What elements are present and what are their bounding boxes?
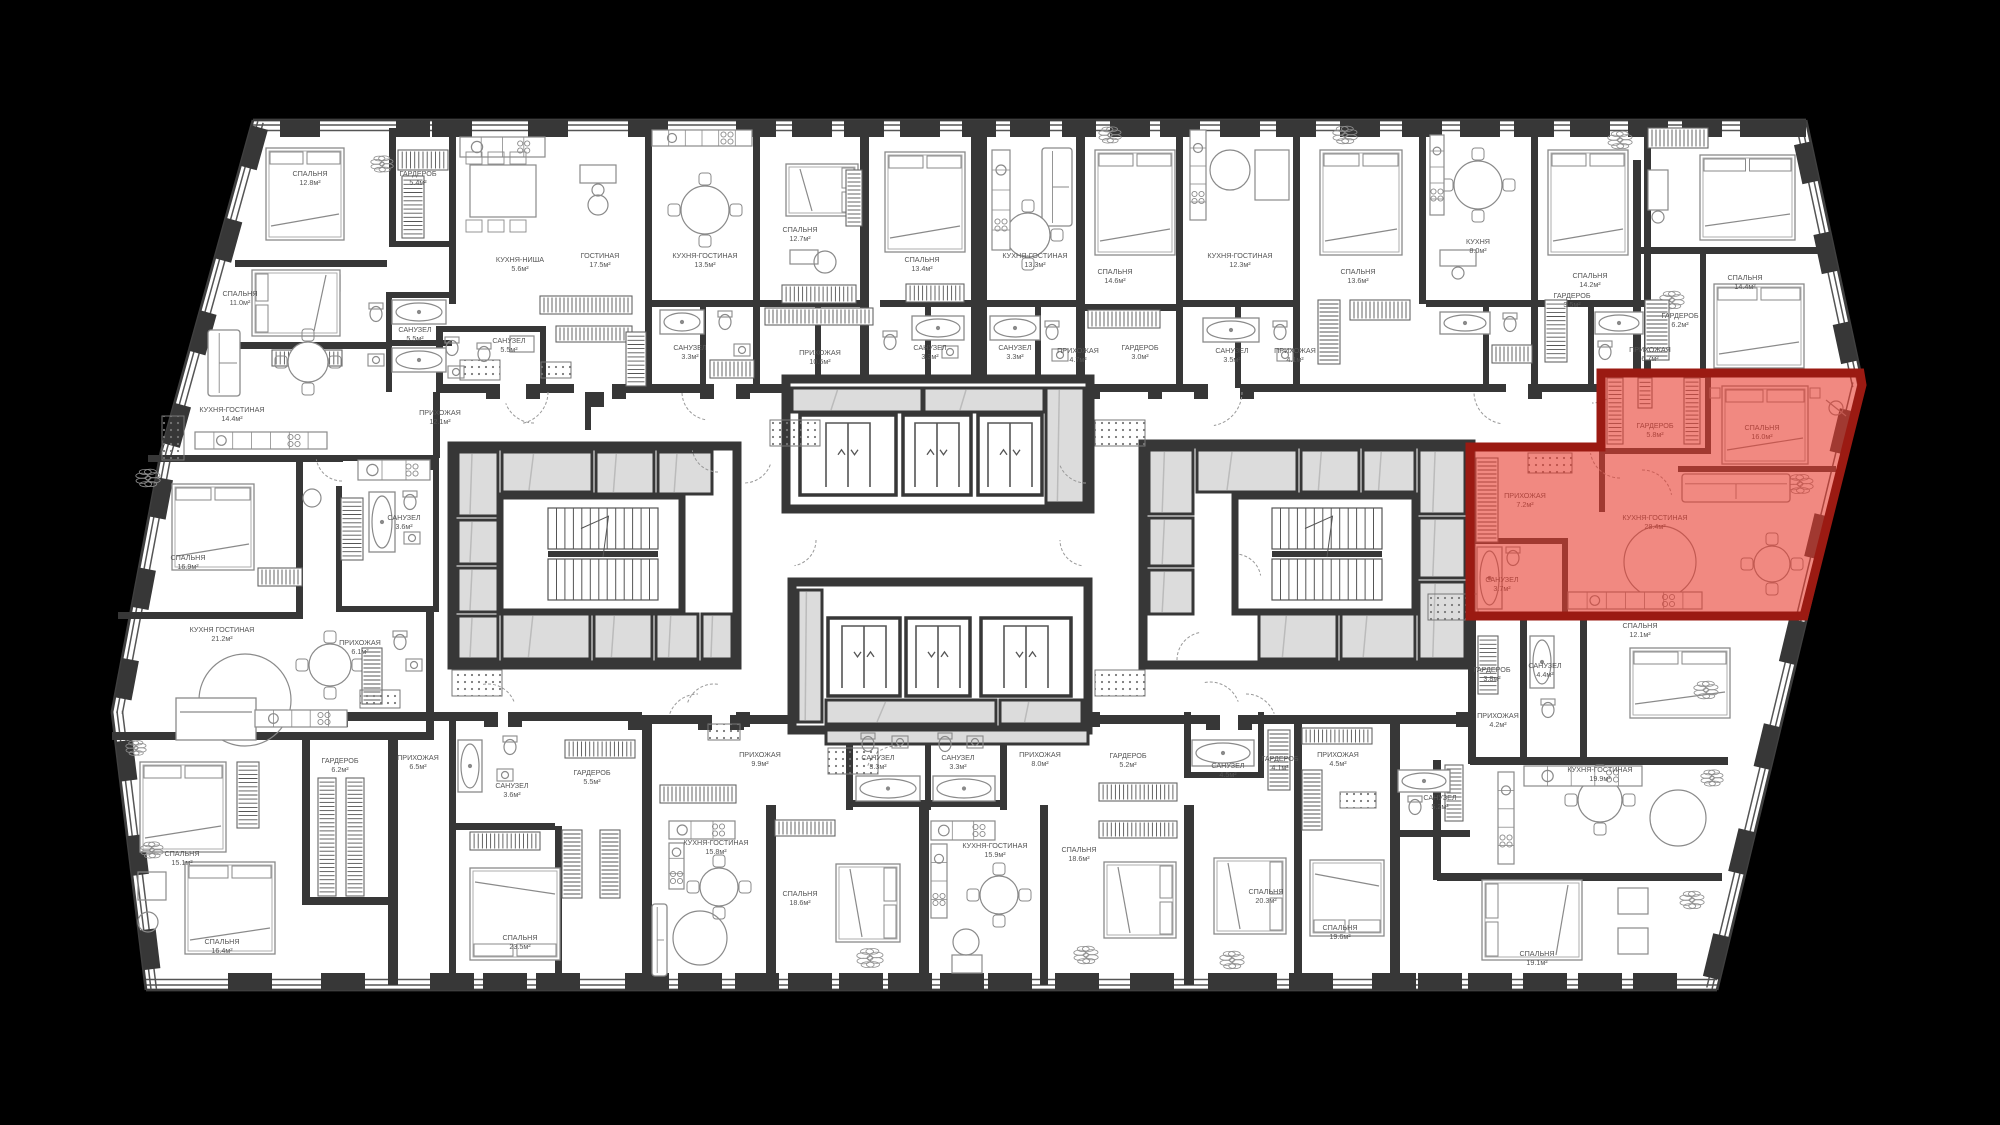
svg-text:3.5м²: 3.5м² xyxy=(1563,300,1581,309)
svg-text:6.2м²: 6.2м² xyxy=(331,765,349,774)
svg-text:6.7м²: 6.7м² xyxy=(1641,354,1659,363)
svg-text:10.5м²: 10.5м² xyxy=(809,357,831,366)
svg-text:3.5м²: 3.5м² xyxy=(1223,355,1241,364)
svg-text:4.1м²: 4.1м² xyxy=(1286,355,1304,364)
svg-text:5.5м²: 5.5м² xyxy=(500,345,518,354)
svg-text:ГАРДЕРОБ: ГАРДЕРОБ xyxy=(573,768,610,777)
svg-text:СПАЛЬНЯ: СПАЛЬНЯ xyxy=(1322,923,1357,932)
svg-text:СПАЛЬНЯ: СПАЛЬНЯ xyxy=(782,889,817,898)
svg-text:СПАЛЬНЯ: СПАЛЬНЯ xyxy=(1248,887,1283,896)
svg-text:13.5м²: 13.5м² xyxy=(694,260,716,269)
svg-text:13.4м²: 13.4м² xyxy=(911,264,933,273)
svg-text:ГАРДЕРОБ: ГАРДЕРОБ xyxy=(1109,751,1146,760)
svg-text:СПАЛЬНЯ: СПАЛЬНЯ xyxy=(164,849,199,858)
svg-text:КУХНЯ-ГОСТИНАЯ: КУХНЯ-ГОСТИНАЯ xyxy=(199,405,264,414)
svg-text:12.8м²: 12.8м² xyxy=(299,178,321,187)
svg-text:4.5м²: 4.5м² xyxy=(1329,759,1347,768)
svg-text:6.2м²: 6.2м² xyxy=(1671,320,1689,329)
svg-text:САНУЗЕЛ: САНУЗЕЛ xyxy=(941,753,975,762)
svg-text:СПАЛЬНЯ: СПАЛЬНЯ xyxy=(204,937,239,946)
svg-text:5.6м²: 5.6м² xyxy=(511,264,529,273)
svg-text:ГОСТИНАЯ: ГОСТИНАЯ xyxy=(581,251,620,260)
svg-text:ПРИХОЖАЯ: ПРИХОЖАЯ xyxy=(1629,345,1671,354)
svg-text:ГАРДЕРОБ: ГАРДЕРОБ xyxy=(1473,665,1510,674)
svg-text:ГАРДЕРОБ: ГАРДЕРОБ xyxy=(399,169,436,178)
svg-text:3.3м²: 3.3м² xyxy=(921,352,939,361)
svg-text:ПРИХОЖАЯ: ПРИХОЖАЯ xyxy=(739,750,781,759)
svg-text:12.7м²: 12.7м² xyxy=(789,234,811,243)
svg-text:8.0м²: 8.0м² xyxy=(1469,246,1487,255)
svg-text:3.3м²: 3.3м² xyxy=(1006,352,1024,361)
svg-text:ГАРДЕРОБ: ГАРДЕРОБ xyxy=(1553,291,1590,300)
svg-text:СПАЛЬНЯ: СПАЛЬНЯ xyxy=(1061,845,1096,854)
svg-text:ПРИХОЖАЯ: ПРИХОЖАЯ xyxy=(799,348,841,357)
svg-text:ГАРДЕРОБ: ГАРДЕРОБ xyxy=(1121,343,1158,352)
svg-text:КУХНЯ-ГОСТИНАЯ: КУХНЯ-ГОСТИНАЯ xyxy=(1207,251,1272,260)
svg-text:6.1м²: 6.1м² xyxy=(351,647,369,656)
svg-text:15.1м²: 15.1м² xyxy=(171,858,193,867)
svg-text:СПАЛЬНЯ: СПАЛЬНЯ xyxy=(1519,949,1554,958)
svg-text:СПАЛЬНЯ: СПАЛЬНЯ xyxy=(1097,267,1132,276)
svg-text:СПАЛЬНЯ: СПАЛЬНЯ xyxy=(782,225,817,234)
svg-text:3.6м²: 3.6м² xyxy=(395,522,413,531)
svg-text:КУХНЯ ГОСТИНАЯ: КУХНЯ ГОСТИНАЯ xyxy=(190,625,255,634)
svg-text:3.3м²: 3.3м² xyxy=(949,762,967,771)
svg-text:17.5м²: 17.5м² xyxy=(589,260,611,269)
svg-text:ПРИХОЖАЯ: ПРИХОЖАЯ xyxy=(1019,750,1061,759)
svg-text:15.9м²: 15.9м² xyxy=(984,850,1006,859)
svg-text:САНУЗЕЛ: САНУЗЕЛ xyxy=(492,336,526,345)
svg-text:САНУЗЕЛ: САНУЗЕЛ xyxy=(913,343,947,352)
svg-text:ПРИХОЖАЯ: ПРИХОЖАЯ xyxy=(419,408,461,417)
svg-text:САНУЗЕЛ: САНУЗЕЛ xyxy=(673,343,707,352)
svg-text:19.6м²: 19.6м² xyxy=(1329,932,1351,941)
svg-text:КУХНЯ-ГОСТИНАЯ: КУХНЯ-ГОСТИНАЯ xyxy=(1567,765,1632,774)
svg-text:САНУЗЕЛ: САНУЗЕЛ xyxy=(861,753,895,762)
svg-text:ПРИХОЖАЯ: ПРИХОЖАЯ xyxy=(397,753,439,762)
svg-text:20.3м²: 20.3м² xyxy=(1255,896,1277,905)
svg-text:14.6м²: 14.6м² xyxy=(1104,276,1126,285)
svg-text:СПАЛЬНЯ: СПАЛЬНЯ xyxy=(1340,267,1375,276)
svg-text:13.6м²: 13.6м² xyxy=(1347,276,1369,285)
svg-text:14.4м²: 14.4м² xyxy=(221,414,243,423)
svg-text:3.3м²: 3.3м² xyxy=(681,352,699,361)
svg-text:КУХНЯ-ГОСТИНАЯ: КУХНЯ-ГОСТИНАЯ xyxy=(683,838,748,847)
svg-text:СПАЛЬНЯ: СПАЛЬНЯ xyxy=(1622,621,1657,630)
svg-text:КУХНЯ: КУХНЯ xyxy=(1466,237,1490,246)
svg-text:КУХНЯ-НИША: КУХНЯ-НИША xyxy=(496,255,544,264)
svg-text:САНУЗЕЛ: САНУЗЕЛ xyxy=(1211,761,1245,770)
svg-text:СПАЛЬНЯ: СПАЛЬНЯ xyxy=(502,933,537,942)
svg-text:ГАРДЕРОБ: ГАРДЕРОБ xyxy=(321,756,358,765)
svg-text:23.5м²: 23.5м² xyxy=(509,942,531,951)
svg-text:3.8м²: 3.8м² xyxy=(1483,674,1501,683)
svg-text:5.2м²: 5.2м² xyxy=(1431,802,1449,811)
svg-text:КУХНЯ-ГОСТИНАЯ: КУХНЯ-ГОСТИНАЯ xyxy=(672,251,737,260)
svg-text:9.9м²: 9.9м² xyxy=(751,759,769,768)
svg-text:СПАЛЬНЯ: СПАЛЬНЯ xyxy=(292,169,327,178)
svg-text:4.5м²: 4.5м² xyxy=(1219,770,1237,779)
svg-text:ПРИХОЖАЯ: ПРИХОЖАЯ xyxy=(1317,750,1359,759)
svg-text:ПРИХОЖАЯ: ПРИХОЖАЯ xyxy=(1274,346,1316,355)
svg-text:18.6м²: 18.6м² xyxy=(1068,854,1090,863)
svg-text:САНУЗЕЛ: САНУЗЕЛ xyxy=(1423,793,1457,802)
svg-text:5.5м²: 5.5м² xyxy=(406,334,424,343)
svg-text:СПАЛЬНЯ: СПАЛЬНЯ xyxy=(1727,273,1762,282)
svg-text:5.4м²: 5.4м² xyxy=(409,178,427,187)
svg-text:КУХНЯ-ГОСТИНАЯ: КУХНЯ-ГОСТИНАЯ xyxy=(962,841,1027,850)
svg-text:21.2м²: 21.2м² xyxy=(211,634,233,643)
svg-text:4.2м²: 4.2м² xyxy=(1489,720,1507,729)
svg-text:САНУЗЕЛ: САНУЗЕЛ xyxy=(1215,346,1249,355)
svg-text:12.3м²: 12.3м² xyxy=(1229,260,1251,269)
svg-text:5.2м²: 5.2м² xyxy=(1119,760,1137,769)
svg-text:СПАЛЬНЯ: СПАЛЬНЯ xyxy=(222,289,257,298)
svg-text:15.8м²: 15.8м² xyxy=(705,847,727,856)
svg-text:14.4м²: 14.4м² xyxy=(1734,282,1756,291)
svg-text:5.5м²: 5.5м² xyxy=(583,777,601,786)
svg-text:ПРИХОЖАЯ: ПРИХОЖАЯ xyxy=(1057,346,1099,355)
svg-text:8.0м²: 8.0м² xyxy=(1031,759,1049,768)
svg-text:6.5м²: 6.5м² xyxy=(409,762,427,771)
svg-text:3.0м²: 3.0м² xyxy=(1131,352,1149,361)
svg-text:СПАЛЬНЯ: СПАЛЬНЯ xyxy=(170,553,205,562)
svg-text:САНУЗЕЛ: САНУЗЕЛ xyxy=(495,781,529,790)
svg-text:14.2м²: 14.2м² xyxy=(1579,280,1601,289)
svg-text:САНУЗЕЛ: САНУЗЕЛ xyxy=(1528,661,1562,670)
svg-text:16.9м²: 16.9м² xyxy=(177,562,199,571)
svg-text:12.1м²: 12.1м² xyxy=(1629,630,1651,639)
svg-text:САНУЗЕЛ: САНУЗЕЛ xyxy=(998,343,1032,352)
svg-text:16.4м²: 16.4м² xyxy=(211,946,233,955)
svg-text:ГАРДЕРОБ: ГАРДЕРОБ xyxy=(1661,311,1698,320)
svg-text:4.7м²: 4.7м² xyxy=(1069,355,1087,364)
svg-text:ГАРДЕРОБ: ГАРДЕРОБ xyxy=(1261,754,1298,763)
svg-text:4.4м²: 4.4м² xyxy=(1536,670,1554,679)
svg-text:ПРИХОЖАЯ: ПРИХОЖАЯ xyxy=(339,638,381,647)
svg-text:11.0м²: 11.0м² xyxy=(230,298,251,307)
svg-text:18.6м²: 18.6м² xyxy=(789,898,811,907)
svg-text:ПРИХОЖАЯ: ПРИХОЖАЯ xyxy=(1477,711,1519,720)
svg-text:САНУЗЕЛ: САНУЗЕЛ xyxy=(387,513,421,522)
svg-text:СПАЛЬНЯ: СПАЛЬНЯ xyxy=(904,255,939,264)
svg-text:3.3м²: 3.3м² xyxy=(869,762,887,771)
svg-text:САНУЗЕЛ: САНУЗЕЛ xyxy=(398,325,432,334)
svg-text:СПАЛЬНЯ: СПАЛЬНЯ xyxy=(1572,271,1607,280)
svg-text:КУХНЯ-ГОСТИНАЯ: КУХНЯ-ГОСТИНАЯ xyxy=(1002,251,1067,260)
svg-text:19.1м²: 19.1м² xyxy=(1526,958,1548,967)
svg-text:12.1м²: 12.1м² xyxy=(429,417,451,426)
svg-text:19.9м²: 19.9м² xyxy=(1589,774,1611,783)
svg-text:13.3м²: 13.3м² xyxy=(1024,260,1046,269)
svg-text:3.6м²: 3.6м² xyxy=(503,790,521,799)
svg-text:4.1м²: 4.1м² xyxy=(1271,763,1289,772)
